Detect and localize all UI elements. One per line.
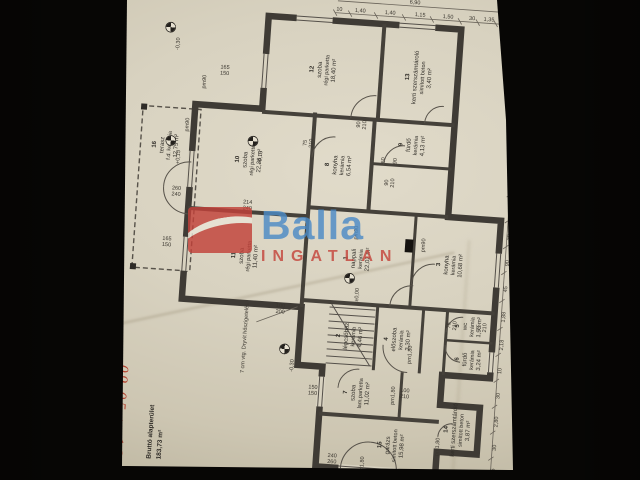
room-label-14: 14kerti szerszámtárolósimított beton3,87…: [441, 396, 475, 464]
dimension-text: 10: [336, 7, 343, 14]
dimension-text: 1,50: [443, 14, 454, 21]
room-label-7: 7szobalam.parketta11,02 m²: [341, 359, 375, 427]
area-stamp: Bruttó alapterület 183,73 m²: [145, 404, 168, 459]
dimension-text: 1,35: [483, 17, 494, 24]
room-label-9: 9fürdőkerámia4,13 m²: [396, 111, 430, 179]
dimension-text: pm1,80: [390, 386, 398, 405]
dimension-text: 30: [492, 445, 499, 452]
floorplan-photo: Bruttó alapterület 183,73 m² 7 cm vtg. D…: [0, 0, 640, 480]
watermark-text: Balla INGATLAN: [261, 207, 398, 266]
dimension-text: 4,20: [514, 121, 521, 132]
dimension-text: 30: [507, 234, 514, 241]
balla-logo-icon: [188, 207, 252, 253]
room-label-3: 3konyhakerámia10,68 m²: [434, 231, 468, 299]
dimension-text: 2,80: [493, 416, 500, 427]
level-marker-icon: [166, 22, 176, 32]
level-label: +0,15: [257, 151, 264, 165]
dimension-text: 1,16: [512, 154, 519, 165]
room-label-16: 16teraszf.d. kerámia12,75 m²: [150, 111, 184, 179]
handwritten-date: 09.05 × 16.30: [106, 364, 130, 480]
dimension-text: pm90: [201, 75, 208, 89]
dimension-text: pm1,80: [434, 438, 442, 457]
dimension-text: 100 200: [275, 303, 285, 316]
room-label-13: 13kerti szerszámtárolósimított beton3,40…: [403, 44, 437, 112]
level-marker-icon: [280, 344, 290, 354]
dimension-text: 165 150: [162, 236, 172, 249]
level-label: ±0,00: [354, 288, 361, 302]
dimension-text: 150 150: [308, 384, 318, 397]
dimension-text: 45: [503, 286, 510, 293]
dimension-text: 90: [505, 260, 512, 267]
insulation-note: 7 cm vtg. Dryvit hőszigetelés: [240, 303, 251, 373]
dimension-text: 75 210: [446, 321, 459, 331]
dimension-text: 3,85: [490, 468, 497, 479]
dimension-text: 6,90: [409, 0, 420, 7]
watermark-brand: Balla: [261, 207, 398, 245]
room-label-12: 12szobarégi parketta18,40 m²: [307, 36, 341, 104]
dimension-text: 1,15: [415, 12, 426, 19]
dimension-text: 1,88: [501, 312, 508, 323]
watermark-brand-sub: INGATLAN: [261, 248, 398, 266]
dimension-text: 90: [393, 158, 400, 165]
room-label-6: 6fürdőkerámia3,24 m²: [452, 326, 486, 394]
dimension-text: pm90: [184, 118, 191, 132]
level-label: +0,15: [175, 150, 182, 164]
dimension-text: 90 210: [384, 178, 397, 188]
dimension-text: 260 240: [171, 185, 181, 198]
dimension-text: 60: [381, 157, 388, 164]
dimension-text: 10: [497, 368, 504, 375]
agency-watermark: Balla INGATLAN: [188, 207, 434, 271]
dimension-text: pm1,80: [407, 345, 415, 364]
dimension-text: 90 210: [356, 120, 369, 130]
dimension-text: 4,90: [517, 86, 524, 97]
dimension-text: 30: [495, 393, 502, 400]
dimension-text: 165 150: [220, 64, 230, 77]
dimension-text: 75 210: [476, 323, 489, 333]
dimension-text: 2,18: [499, 340, 506, 351]
dimension-text: 30: [510, 182, 517, 189]
dimension-text: 1,40: [355, 8, 366, 15]
room-label-8: 8konyhakerámia6,54 m²: [323, 131, 357, 199]
dimension-text: 1,40: [385, 10, 396, 17]
dimension-text: 100 210: [400, 388, 410, 401]
dimension-text: pm1,80: [359, 456, 367, 475]
dimension-text: 75 210: [302, 138, 315, 148]
dimension-text: 96: [508, 208, 515, 215]
level-label: -0,30: [175, 37, 182, 50]
level-label: -0,30: [289, 359, 296, 372]
dimension-text: 240 260: [327, 453, 337, 466]
room-label-15: 15garázssimított beton15,98 m²: [375, 412, 409, 480]
dimension-text: 30: [469, 16, 476, 23]
